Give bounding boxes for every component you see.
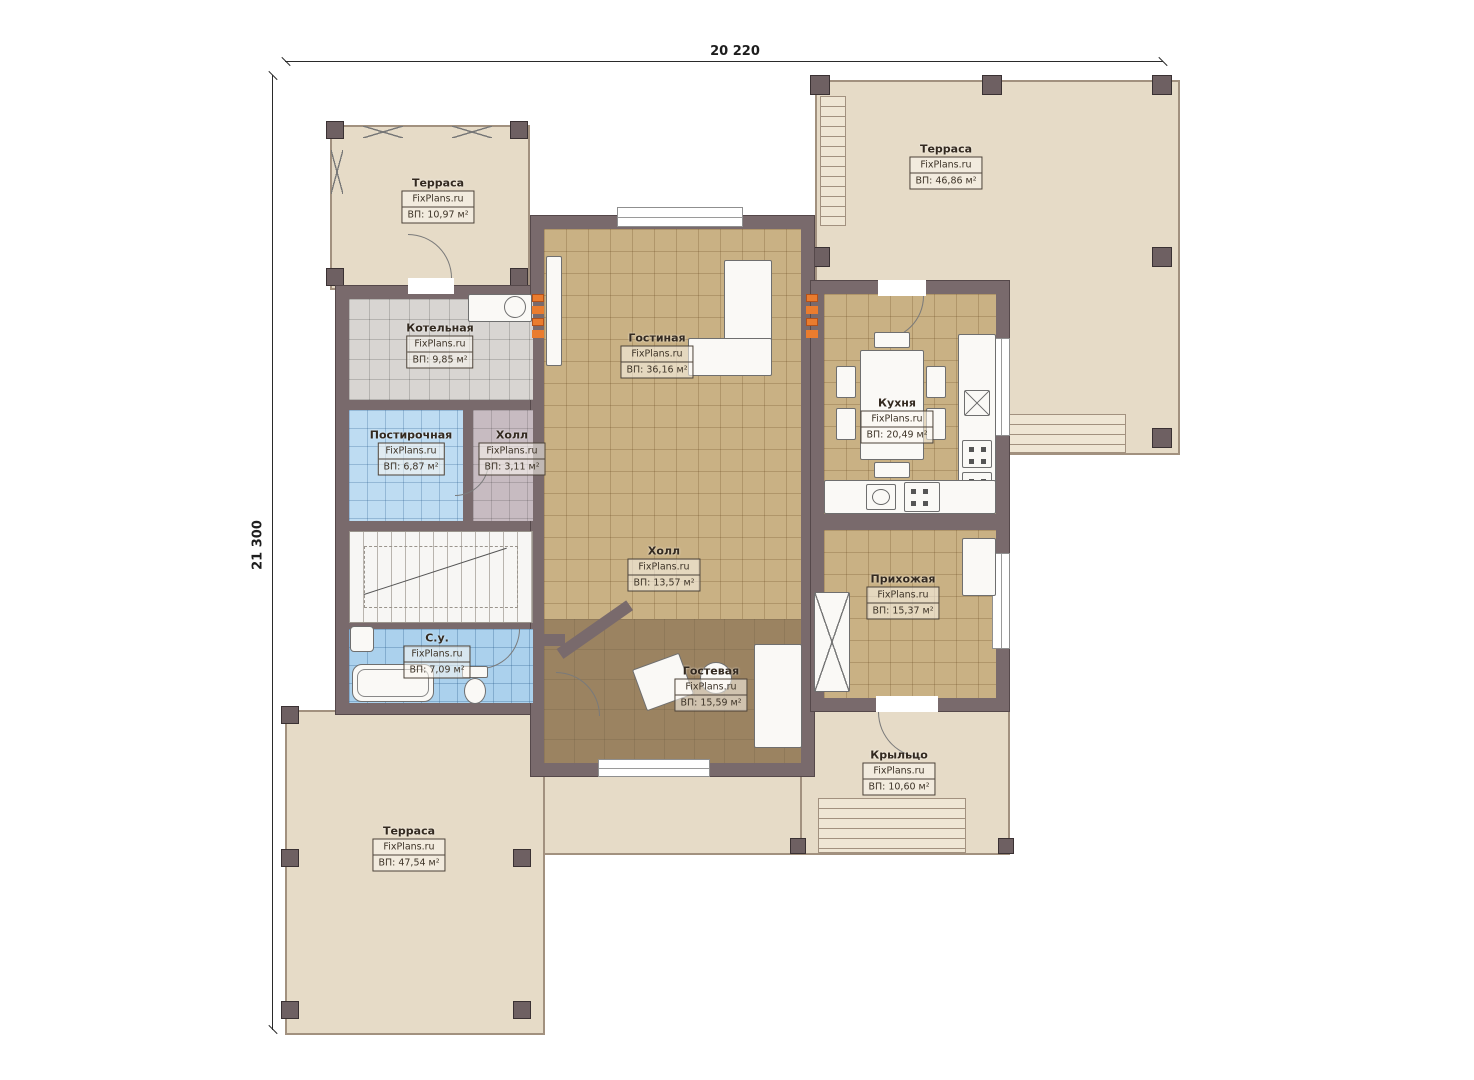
room-name: Прихожая: [866, 573, 939, 586]
tv-unit: [546, 256, 562, 366]
boiler: [504, 296, 526, 318]
dimension-line-top: [285, 61, 1163, 62]
room-label-box: FixPlans.ru ВП: 15,37 м²: [866, 587, 939, 620]
room-label-gostinaya: Гостиная FixPlans.ru ВП: 36,16 м²: [620, 332, 693, 379]
room-label-kuhnya: Кухня FixPlans.ru ВП: 20,49 м²: [860, 397, 933, 444]
porch-column: [790, 838, 806, 854]
chair: [926, 366, 946, 398]
room-area: ВП: 3,11 м²: [479, 459, 544, 475]
glazing-mark: [363, 126, 403, 138]
dimension-line-left: [272, 75, 273, 1030]
dimension-left-value: 21 300: [251, 520, 266, 570]
terrace-column: [326, 121, 344, 139]
terrace-column: [281, 706, 299, 724]
room-label-box: FixPlans.ru ВП: 20,49 м²: [860, 411, 933, 444]
wardrobe: [814, 592, 850, 692]
toilet-bowl: [464, 678, 486, 704]
door-opening: [876, 696, 938, 712]
room-brand: FixPlans.ru: [863, 764, 934, 779]
kitchen-sink: [866, 484, 896, 510]
room-name: Гостевая: [674, 665, 747, 678]
room-label-box: FixPlans.ru ВП: 10,60 м²: [862, 763, 935, 796]
room-area: ВП: 10,97 м²: [402, 207, 473, 223]
terrace-column: [513, 1001, 531, 1019]
room-label-box: FixPlans.ru ВП: 10,97 м²: [401, 191, 474, 224]
room-brand: FixPlans.ru: [404, 647, 469, 662]
room-label-krylco: Крыльцо FixPlans.ru ВП: 10,60 м²: [862, 749, 935, 796]
terrace-column: [510, 268, 528, 286]
room-label-gostevaya: Гостевая FixPlans.ru ВП: 15,59 м²: [674, 665, 747, 712]
room-brand: FixPlans.ru: [867, 588, 938, 603]
dimension-tick: [268, 71, 277, 80]
room-brand: FixPlans.ru: [675, 680, 746, 695]
porch-steps: [818, 798, 966, 853]
room-name: С.у.: [403, 632, 470, 645]
room-name: Холл: [478, 429, 545, 442]
terrace-column: [281, 849, 299, 867]
terrace-steps: [1008, 414, 1126, 453]
room-brand: FixPlans.ru: [378, 444, 443, 459]
terrace-column: [1152, 75, 1172, 95]
radiator: [806, 318, 818, 326]
room-label-terrace-bottom-left: Терраса FixPlans.ru ВП: 47,54 м²: [372, 825, 445, 872]
room-name: Постирочная: [370, 429, 452, 442]
kitchen-appliance: [962, 440, 992, 468]
room-label-box: FixPlans.ru ВП: 6,87 м²: [377, 443, 444, 476]
staircase-dashed-outline: [364, 546, 518, 608]
terrace-column: [1152, 247, 1172, 267]
room-label-box: FixPlans.ru ВП: 9,85 м²: [406, 336, 473, 369]
bathroom-sink: [350, 626, 374, 652]
room-label-box: FixPlans.ru ВП: 13,57 м²: [627, 559, 700, 592]
room-name: Терраса: [372, 825, 445, 838]
room-area: ВП: 10,60 м²: [863, 779, 934, 795]
terrace-column: [326, 268, 344, 286]
door-opening: [878, 280, 926, 296]
room-name: Крыльцо: [862, 749, 935, 762]
room-brand: FixPlans.ru: [621, 347, 692, 362]
radiator: [532, 294, 544, 302]
room-label-box: FixPlans.ru ВП: 36,16 м²: [620, 346, 693, 379]
porch-column: [998, 838, 1014, 854]
room-name: Терраса: [401, 177, 474, 190]
room-area: ВП: 6,87 м²: [378, 459, 443, 475]
room-area: ВП: 7,09 м²: [404, 662, 469, 678]
chair: [874, 332, 910, 348]
room-label-terrace-top-right: Терраса FixPlans.ru ВП: 46,86 м²: [909, 143, 982, 190]
room-label-box: FixPlans.ru ВП: 3,11 м²: [478, 443, 545, 476]
room-area: ВП: 20,49 м²: [861, 427, 932, 443]
room-brand: FixPlans.ru: [628, 560, 699, 575]
room-label-box: FixPlans.ru ВП: 15,59 м²: [674, 679, 747, 712]
dimension-tick: [268, 1025, 277, 1034]
dimension-top-value: 20 220: [710, 44, 760, 59]
room-label-holl: Холл FixPlans.ru ВП: 13,57 м²: [627, 545, 700, 592]
terrace-column: [513, 849, 531, 867]
wall-segment: [533, 634, 565, 646]
room-label-kotelnaya: Котельная FixPlans.ru ВП: 9,85 м²: [406, 322, 473, 369]
radiator: [806, 294, 818, 302]
door-opening: [408, 278, 454, 294]
room-area: ВП: 46,86 м²: [910, 173, 981, 189]
glazing-mark: [452, 126, 492, 138]
room-name: Котельная: [406, 322, 473, 335]
sofa-l-horizontal: [688, 338, 772, 376]
kitchen-sink-mark: [964, 390, 990, 416]
window: [598, 759, 710, 777]
room-area: ВП: 13,57 м²: [628, 575, 699, 591]
floor-plan-canvas: 20 220 21 300: [0, 0, 1474, 1080]
glazing-mark: [331, 150, 343, 194]
room-brand: FixPlans.ru: [407, 337, 472, 352]
chair: [874, 462, 910, 478]
room-area: ВП: 36,16 м²: [621, 362, 692, 378]
paved-strip: [545, 777, 810, 855]
room-label-prihozhaya: Прихожая FixPlans.ru ВП: 15,37 м²: [866, 573, 939, 620]
room-label-su: С.у. FixPlans.ru ВП: 7,09 м²: [403, 632, 470, 679]
room-area: ВП: 47,54 м²: [373, 855, 444, 871]
room-brand: FixPlans.ru: [910, 158, 981, 173]
room-name: Терраса: [909, 143, 982, 156]
room-name: Холл: [627, 545, 700, 558]
room-area: ВП: 9,85 м²: [407, 352, 472, 368]
terrace-column: [281, 1001, 299, 1019]
room-label-terrace-top-left: Терраса FixPlans.ru ВП: 10,97 м²: [401, 177, 474, 224]
room-label-box: FixPlans.ru ВП: 47,54 м²: [372, 839, 445, 872]
room-brand: FixPlans.ru: [402, 192, 473, 207]
terrace-column: [1152, 428, 1172, 448]
room-brand: FixPlans.ru: [861, 412, 932, 427]
room-brand: FixPlans.ru: [479, 444, 544, 459]
radiator: [532, 318, 544, 326]
room-label-box: FixPlans.ru ВП: 46,86 м²: [909, 157, 982, 190]
terrace-stair-hatch: [820, 96, 846, 226]
terrace-column: [510, 121, 528, 139]
stove: [904, 482, 940, 512]
room-area: ВП: 15,37 м²: [867, 603, 938, 619]
room-area: ВП: 15,59 м²: [675, 695, 746, 711]
guest-bed: [754, 644, 802, 748]
chair: [836, 366, 856, 398]
room-brand: FixPlans.ru: [373, 840, 444, 855]
room-name: Гостиная: [620, 332, 693, 345]
closet: [962, 538, 996, 596]
staircase: [349, 531, 533, 623]
terrace-column: [810, 75, 830, 95]
chair: [836, 408, 856, 440]
room-name: Кухня: [860, 397, 933, 410]
room-label-postirochnaya: Постирочная FixPlans.ru ВП: 6,87 м²: [370, 429, 452, 476]
room-label-holl-small: Холл FixPlans.ru ВП: 3,11 м²: [478, 429, 545, 476]
room-label-box: FixPlans.ru ВП: 7,09 м²: [403, 646, 470, 679]
terrace-bottom-left: [285, 710, 545, 1035]
terrace-column: [982, 75, 1002, 95]
window: [617, 207, 743, 227]
